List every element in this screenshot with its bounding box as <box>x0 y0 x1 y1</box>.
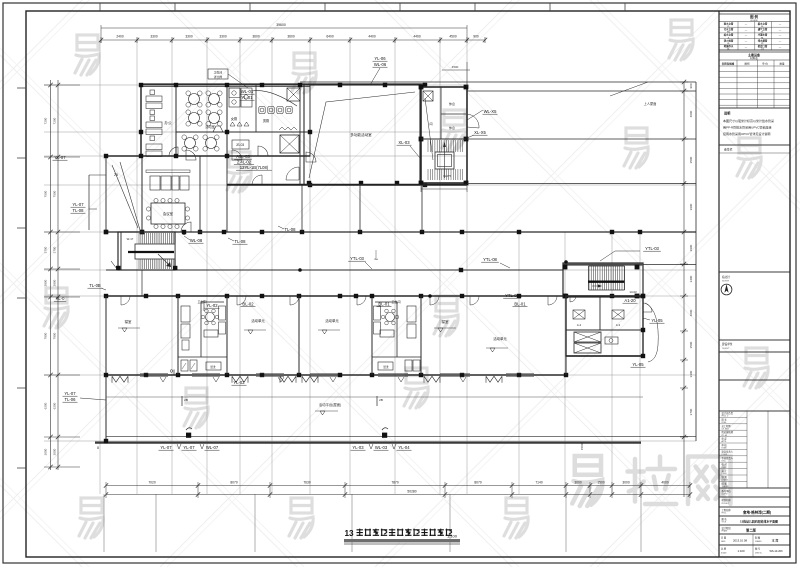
svg-text:寝室: 寝室 <box>125 319 132 324</box>
svg-text:YL-02: YL-02 <box>206 303 218 308</box>
svg-text:DRAWN: DRAWN <box>755 540 762 543</box>
svg-text:YL-0: YL-0 <box>56 296 66 301</box>
svg-text:3500: 3500 <box>689 341 693 348</box>
svg-text:寝室: 寝室 <box>442 319 449 324</box>
svg-text:详大样: 详大样 <box>214 75 223 79</box>
svg-text:YL-05: YL-05 <box>632 362 644 367</box>
svg-text:YL-07: YL-07 <box>72 202 84 207</box>
svg-text:YTL-03: YTL-03 <box>350 256 364 261</box>
svg-text:4000: 4000 <box>689 309 693 316</box>
svg-text:3000: 3000 <box>44 448 48 455</box>
svg-text:2400: 2400 <box>116 35 124 39</box>
svg-text:CLIENT: CLIENT <box>722 348 730 350</box>
svg-text:YL-03: YL-03 <box>352 445 364 450</box>
svg-text:3000: 3000 <box>622 481 630 485</box>
svg-text:13: 13 <box>344 529 354 538</box>
svg-text:废水立管: 废水立管 <box>757 21 768 25</box>
svg-text:3300: 3300 <box>150 35 158 39</box>
svg-text:3000: 3000 <box>574 481 582 485</box>
svg-text:DRAWN: DRAWN <box>722 479 729 482</box>
svg-text:7200: 7200 <box>53 117 57 124</box>
svg-text:2B: 2B <box>184 398 188 402</box>
svg-text:7630: 7630 <box>303 481 311 485</box>
svg-text:JS-03: JS-03 <box>236 143 245 147</box>
svg-text:办公: 办公 <box>164 120 172 125</box>
svg-text:消火栓管: 消火栓管 <box>723 38 734 42</box>
svg-text:PR. AR: PR. AR <box>722 434 728 437</box>
svg-text:用PP-R管排水管采用UPVC管粘接连: 用PP-R管排水管采用UPVC管粘接连 <box>723 125 772 130</box>
svg-text:7020: 7020 <box>148 481 156 485</box>
svg-text:1500: 1500 <box>597 481 605 485</box>
svg-text:WL-08: WL-08 <box>190 238 203 243</box>
svg-text:TL-08: TL-08 <box>235 239 247 244</box>
svg-text:3600: 3600 <box>252 35 260 39</box>
svg-text:TL-06: TL-06 <box>65 397 77 402</box>
svg-text:YTL-03: YTL-03 <box>645 246 659 251</box>
svg-text:多功能活动室: 多功能活动室 <box>350 132 372 137</box>
svg-text:7870: 7870 <box>391 481 399 485</box>
svg-text:15000: 15000 <box>580 441 584 450</box>
svg-text:3300: 3300 <box>689 370 693 377</box>
svg-text:13栋幼儿园四层给排水平面图: 13栋幼儿园四层给排水平面图 <box>740 519 778 524</box>
svg-text:2B: 2B <box>379 398 383 402</box>
svg-text:13-03: 13-03 <box>629 290 637 294</box>
svg-text:WS-13-206: WS-13-206 <box>769 549 783 553</box>
svg-text:YL-07: YL-07 <box>54 155 66 160</box>
svg-text:3700: 3700 <box>44 246 48 253</box>
svg-text:YL-05: YL-05 <box>651 318 663 323</box>
svg-text:900: 900 <box>473 35 479 39</box>
svg-text:会签栏: 会签栏 <box>724 148 733 152</box>
svg-text:2013.10.08: 2013.10.08 <box>733 539 747 543</box>
svg-text:A.3: A.3 <box>616 323 621 327</box>
svg-text:YL-07: YL-07 <box>183 445 195 450</box>
svg-text:4500: 4500 <box>449 35 457 39</box>
svg-text:单 位: 单 位 <box>762 62 768 66</box>
svg-text:8070: 8070 <box>474 481 482 485</box>
svg-text:LG: LG <box>761 49 764 51</box>
svg-text:地漏存水: 地漏存水 <box>724 44 734 48</box>
svg-text:材料表: 材料表 <box>750 56 758 60</box>
svg-text:接雨水管采用UPVC管详见设计说明: 接雨水管采用UPVC管详见设计说明 <box>723 131 770 136</box>
svg-text:数量: 数量 <box>779 62 785 66</box>
svg-text:XL-X5: XL-X5 <box>474 130 486 135</box>
svg-text:W-17: W-17 <box>127 237 134 241</box>
svg-text:活动单元: 活动单元 <box>493 336 507 341</box>
svg-text:A5L-03: A5L-03 <box>236 154 250 159</box>
svg-text:4400: 4400 <box>413 35 421 39</box>
svg-text:盥洗: 盥洗 <box>210 365 216 369</box>
svg-text:2800: 2800 <box>44 279 48 286</box>
svg-text:名称及规格: 名称及规格 <box>722 62 735 66</box>
svg-text:3300: 3300 <box>185 35 193 39</box>
svg-text:BL-01: BL-01 <box>514 302 526 307</box>
svg-text:金地·格林湾(二期): 金地·格林湾(二期) <box>742 510 771 515</box>
svg-text:TL-08: TL-08 <box>73 208 85 213</box>
svg-text:盥洗: 盥洗 <box>383 365 389 369</box>
svg-text:WL-03: WL-03 <box>375 445 388 450</box>
svg-text:YL-02: YL-02 <box>233 380 245 385</box>
svg-text:会议室: 会议室 <box>163 211 174 216</box>
svg-text:NORTH: NORTH <box>722 281 730 283</box>
svg-text:PHASE: PHASE <box>722 530 729 533</box>
svg-text:2B: 2B <box>114 173 118 177</box>
svg-text:YL-07: YL-07 <box>64 391 76 396</box>
svg-text:2.4L-02: 2.4L-02 <box>237 160 252 165</box>
svg-text:检查口管: 检查口管 <box>758 44 768 48</box>
svg-text:BL-02: BL-02 <box>242 302 254 307</box>
svg-text:YTL-08: YTL-08 <box>483 257 497 262</box>
svg-text:PROJ.: PROJ. <box>722 513 728 515</box>
svg-text:7800: 7800 <box>44 332 48 339</box>
svg-text:7200: 7200 <box>44 117 48 124</box>
svg-text:排水横管: 排水横管 <box>758 38 768 42</box>
svg-text:2900: 2900 <box>689 244 693 251</box>
svg-text:间: 间 <box>429 121 432 126</box>
svg-text:3600: 3600 <box>287 35 295 39</box>
svg-text:WL-06: WL-06 <box>374 62 387 67</box>
svg-text:6200: 6200 <box>44 402 48 409</box>
svg-text:A.4: A.4 <box>577 323 582 327</box>
svg-text:1:100: 1:100 <box>447 534 458 539</box>
svg-text:通气立管: 通气立管 <box>758 27 768 31</box>
svg-text:3400: 3400 <box>689 275 693 282</box>
svg-text:本图尺寸以毫米计标高以米计给水管采: 本图尺寸以毫米计标高以米计给水管采 <box>723 118 774 123</box>
svg-text:50280: 50280 <box>407 490 416 494</box>
svg-text:图例: 图例 <box>744 62 750 66</box>
svg-text:活动单元: 活动单元 <box>251 318 265 323</box>
svg-text:39600: 39600 <box>276 23 286 27</box>
svg-text:12YL-1B(7L08): 12YL-1B(7L08) <box>240 165 269 170</box>
svg-text:建设单位: 建设单位 <box>722 342 733 346</box>
svg-text:DWG No.: DWG No. <box>755 553 763 555</box>
svg-text:WL-07: WL-07 <box>206 445 219 450</box>
svg-text:TRACED: TRACED <box>722 485 730 488</box>
svg-text:YL-01: YL-01 <box>241 95 253 100</box>
svg-text:男厕: 男厕 <box>263 118 269 123</box>
svg-text:YL-07: YL-07 <box>160 445 172 450</box>
svg-text:指北针: 指北针 <box>722 275 730 279</box>
svg-text:4000: 4000 <box>661 481 669 485</box>
svg-text:2800: 2800 <box>53 279 57 286</box>
svg-text:雨水立管: 雨水立管 <box>724 21 734 25</box>
svg-text:SCALE: SCALE <box>721 552 727 555</box>
svg-text:YL-04: YL-04 <box>398 445 410 450</box>
svg-text:PROJECT: PROJECT <box>722 503 730 505</box>
svg-text:6200: 6200 <box>53 402 57 409</box>
svg-text:卫生间: 卫生间 <box>391 299 400 304</box>
svg-text:APPR.: APPR. <box>722 440 728 443</box>
svg-text:3300: 3300 <box>219 35 227 39</box>
svg-text:8: 8 <box>97 446 99 450</box>
svg-text:WL-01: WL-01 <box>241 89 254 94</box>
svg-text:冷凝水管: 冷凝水管 <box>758 33 768 37</box>
svg-text:TL-08: TL-08 <box>285 227 297 232</box>
svg-text:7500: 7500 <box>44 190 48 197</box>
svg-text:本 茜: 本 茜 <box>772 538 779 543</box>
svg-text:XL475: XL475 <box>443 174 452 178</box>
svg-text:卫生间: 卫生间 <box>197 299 206 304</box>
svg-text:第二版: 第二版 <box>746 528 757 533</box>
svg-text:给水立管: 给水立管 <box>724 33 734 37</box>
svg-text:3000: 3000 <box>53 448 57 455</box>
svg-text:CLIENT: CLIENT <box>722 494 728 496</box>
svg-text:XL-03: XL-03 <box>398 140 410 145</box>
svg-text:活动平台(屋面): 活动平台(屋面) <box>319 402 342 407</box>
svg-text:3500: 3500 <box>689 156 693 163</box>
svg-text:说明: 说明 <box>724 111 731 116</box>
svg-text:YTL-03: YTL-03 <box>505 293 519 298</box>
svg-text:污水立管: 污水立管 <box>724 27 734 31</box>
svg-text:3700: 3700 <box>689 408 693 415</box>
svg-text:900: 900 <box>689 83 693 88</box>
svg-text:7800: 7800 <box>53 332 57 339</box>
svg-text:活动室: 活动室 <box>205 124 215 129</box>
svg-text:YL-06: YL-06 <box>374 56 386 61</box>
svg-text:EXAM.: EXAM. <box>722 447 728 450</box>
svg-text:8070: 8070 <box>230 481 238 485</box>
svg-text:4500: 4500 <box>452 65 459 69</box>
svg-text:上人屋面: 上人屋面 <box>644 101 657 106</box>
svg-text:休息: 休息 <box>449 101 455 106</box>
svg-text:7500: 7500 <box>53 190 57 197</box>
svg-text:活动单元: 活动单元 <box>325 318 339 323</box>
svg-text:女厕: 女厕 <box>231 116 237 121</box>
svg-text:7140: 7140 <box>535 481 543 485</box>
svg-text:4400: 4400 <box>368 35 376 39</box>
svg-text:4000: 4000 <box>689 110 693 117</box>
svg-text:3700: 3700 <box>53 246 57 253</box>
svg-text:图 例: 图 例 <box>750 14 758 19</box>
svg-text:1:100: 1:100 <box>738 549 745 553</box>
svg-text:3900: 3900 <box>689 203 693 210</box>
svg-text:TL-0B: TL-0B <box>89 283 101 288</box>
svg-text:6400: 6400 <box>326 35 334 39</box>
svg-text:A1-20: A1-20 <box>624 298 636 303</box>
svg-text:休息: 休息 <box>449 125 455 130</box>
svg-text:WL-X5: WL-X5 <box>484 109 497 114</box>
